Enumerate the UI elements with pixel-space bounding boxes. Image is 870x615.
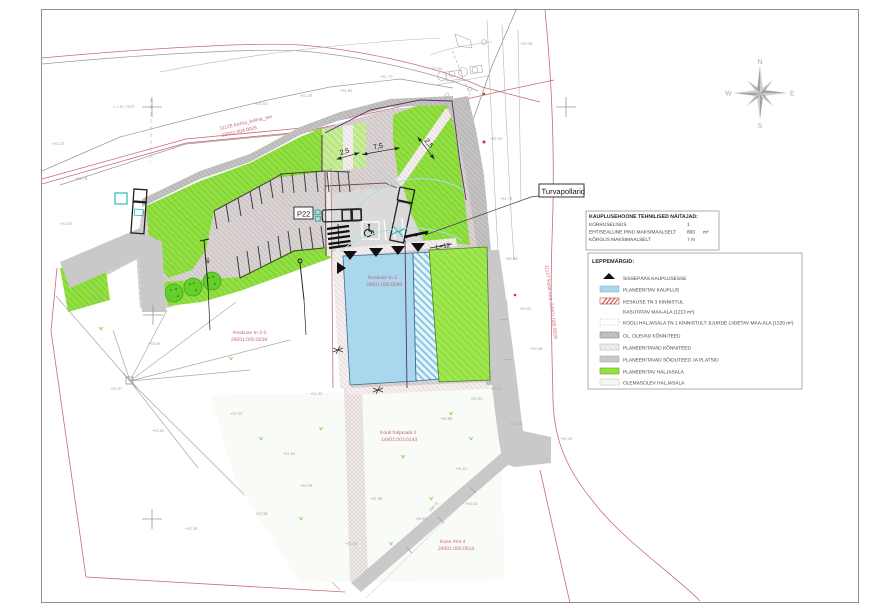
svg-text:ob: ob [204,258,210,264]
svg-text:Keskuse tn 3-2: Keskuse tn 3-2 [233,330,267,336]
svg-text:+52.08: +52.08 [520,41,533,46]
svg-text:+50.57: +50.57 [490,386,503,391]
svg-text:OL. OLEVAD KÕNNITEED: OL. OLEVAD KÕNNITEED [623,333,681,340]
svg-text:+53.05: +53.05 [60,221,73,226]
svg-text:+51.70: +51.70 [380,74,393,79]
svg-text:KESKUSE TN 3 KINNISTUL: KESKUSE TN 3 KINNISTUL [623,300,684,306]
svg-text:+52.38: +52.38 [255,511,268,516]
svg-text:+ = 57.7622: + = 57.7622 [113,104,135,109]
svg-text:PLANEERITAVAD SÕIDUTEED JA PLA: PLANEERITAVAD SÕIDUTEED JA PLATSID [623,357,719,364]
svg-text:Turvapollarid: Turvapollarid [542,187,586,196]
svg-text:+50.85: +50.85 [440,416,453,421]
svg-text:+52.38: +52.38 [185,526,198,531]
svg-text:+52.30: +52.30 [490,136,503,141]
svg-text:+52.08: +52.08 [300,483,313,488]
svg-text:OLEMASOLEV HALJASALA: OLEMASOLEV HALJASALA [623,381,685,387]
svg-text:+51.63: +51.63 [255,101,268,106]
svg-text:PLANEERITAV HALJASALA: PLANEERITAV HALJASALA [623,370,685,376]
svg-text:KASUTATAV MAA-ALA (1213 m²): KASUTATAV MAA-ALA (1213 m²) [623,310,695,316]
svg-text:+50.48: +50.48 [530,346,543,351]
svg-text:Kooli haljasala 1: Kooli haljasala 1 [380,430,417,436]
svg-text:14401:001:0143: 14401:001:0143 [381,437,417,443]
svg-text:KOOLI HALJASALA TN 1 KINNISTUL: KOOLI HALJASALA TN 1 KINNISTULT JUURDE L… [623,321,794,327]
svg-text:+52.78: +52.78 [75,176,88,181]
svg-text:+51.40: +51.40 [310,391,323,396]
svg-text:29001:005:0039: 29001:005:0039 [231,337,267,343]
svg-text:KÕRGUS MAKSIMAALSELT: KÕRGUS MAKSIMAALSELT [589,236,651,243]
svg-text:+50.92: +50.92 [470,396,483,401]
svg-text:KAUPLUSEHOONE TEHNILISED NÄITA: KAUPLUSEHOONE TEHNILISED NÄITAJAD: [589,213,698,220]
svg-text:E: E [790,91,795,98]
svg-text:+53.65: +53.65 [148,341,161,346]
svg-text:7 m: 7 m [687,237,695,243]
svg-text:800: 800 [687,230,695,236]
svg-text:1: 1 [687,222,690,228]
svg-text:N: N [758,59,763,66]
svg-text:+51.84: +51.84 [283,451,296,456]
svg-text:S: S [758,123,763,130]
svg-text:+50.44: +50.44 [465,501,478,506]
svg-text:+52.56: +52.56 [90,296,103,301]
svg-text:+50.94: +50.94 [519,306,532,311]
svg-text:29001:005:0099: 29001:005:0099 [366,282,402,288]
svg-text:Kose mnt 4: Kose mnt 4 [440,539,466,545]
svg-text:+50.64: +50.64 [415,516,428,521]
svg-text:+51.82: +51.82 [340,88,353,93]
svg-text:EHTISEALUNE PIND MAKSIMAALSELT: EHTISEALUNE PIND MAKSIMAALSELT [589,230,676,236]
svg-text:+52.47: +52.47 [110,386,123,391]
svg-text:+52.50: +52.50 [230,411,243,416]
svg-text:KORRUSELISUS: KORRUSELISUS [589,222,627,228]
svg-text:PLANEERITAVAD KÕNNITEED: PLANEERITAVAD KÕNNITEED [623,345,692,352]
svg-text:m²: m² [703,230,709,236]
svg-text:+51.76: +51.76 [510,421,523,426]
svg-text:+53.60: +53.60 [152,428,165,433]
svg-text:+53.22: +53.22 [52,141,65,146]
svg-text:+51.49: +51.49 [300,93,313,98]
svg-text:LEPPEMÄRGID:: LEPPEMÄRGID: [592,258,634,265]
svg-text:+51.54: +51.54 [345,541,358,546]
svg-text:+50.98: +50.98 [505,256,518,261]
svg-text:+51.85: +51.85 [370,496,383,501]
svg-text:+50.45: +50.45 [560,436,573,441]
svg-text:+51.61: +51.61 [455,466,468,471]
svg-text:SISSEPÄÄS KAUPLUSESSE: SISSEPÄÄS KAUPLUSESSE [623,275,686,282]
svg-text:+52.04: +52.04 [430,66,443,71]
svg-text:W: W [725,91,732,98]
svg-text:PLANEERITAV KAUPLUS: PLANEERITAV KAUPLUS [623,288,679,294]
svg-text:+51.73: +51.73 [500,196,513,201]
svg-text:P22: P22 [297,210,310,219]
svg-text:Keskuse tn 3: Keskuse tn 3 [368,275,397,281]
svg-text:24001:005:0014: 24001:005:0014 [438,546,474,552]
